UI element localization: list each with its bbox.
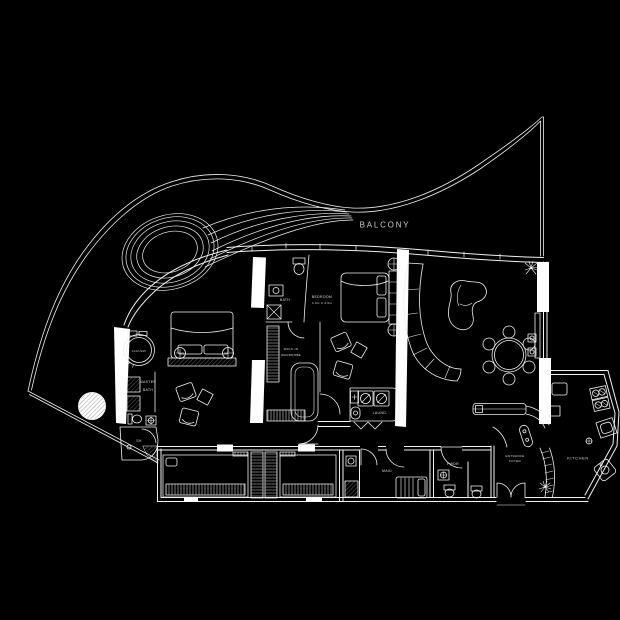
living-room [403, 261, 539, 385]
maid-room [345, 449, 427, 498]
walkin-wardrobe-label-line1: WALK-IN [284, 347, 299, 351]
shower-label: SH [136, 439, 141, 443]
master-bath-label-line2: BATH [143, 388, 153, 392]
bedroom-2 [330, 258, 400, 380]
master-bedroom [168, 312, 236, 426]
bedroom-label: BEDROOM [312, 295, 332, 299]
bath-label: BATH [280, 298, 290, 302]
entrance-foyer-label-line1: ENTRANCE [506, 454, 525, 458]
kitchen-label: KITCHEN [567, 456, 589, 461]
floor-plan-drawing [0, 0, 620, 620]
powder-room-label: PWDR [447, 462, 459, 466]
powder-room [438, 447, 482, 498]
kitchen [546, 371, 619, 500]
walkin-wardrobe-label-line2: WARDROBE [281, 353, 301, 357]
round-column [79, 393, 106, 420]
entrance-foyer-label-line2: FOYER [509, 459, 521, 463]
jacuzzi-label: JACUZZI [132, 349, 146, 353]
maid-room-label: MAID [382, 469, 392, 473]
bedroom-dimensions-label: 4.0m X 4.0m [312, 301, 332, 305]
corridor-closets [163, 452, 336, 498]
entrance-foyer [493, 424, 555, 505]
master-bath-label-line1: MASTER [140, 380, 156, 384]
floor-plan-canvas: BALCONY JACUZZI MASTER BATH SH BATH WALK… [0, 0, 620, 620]
balcony-label: BALCONY [360, 221, 411, 230]
laundry-closet [350, 388, 399, 429]
laundry-label: LAUND. [373, 411, 388, 415]
